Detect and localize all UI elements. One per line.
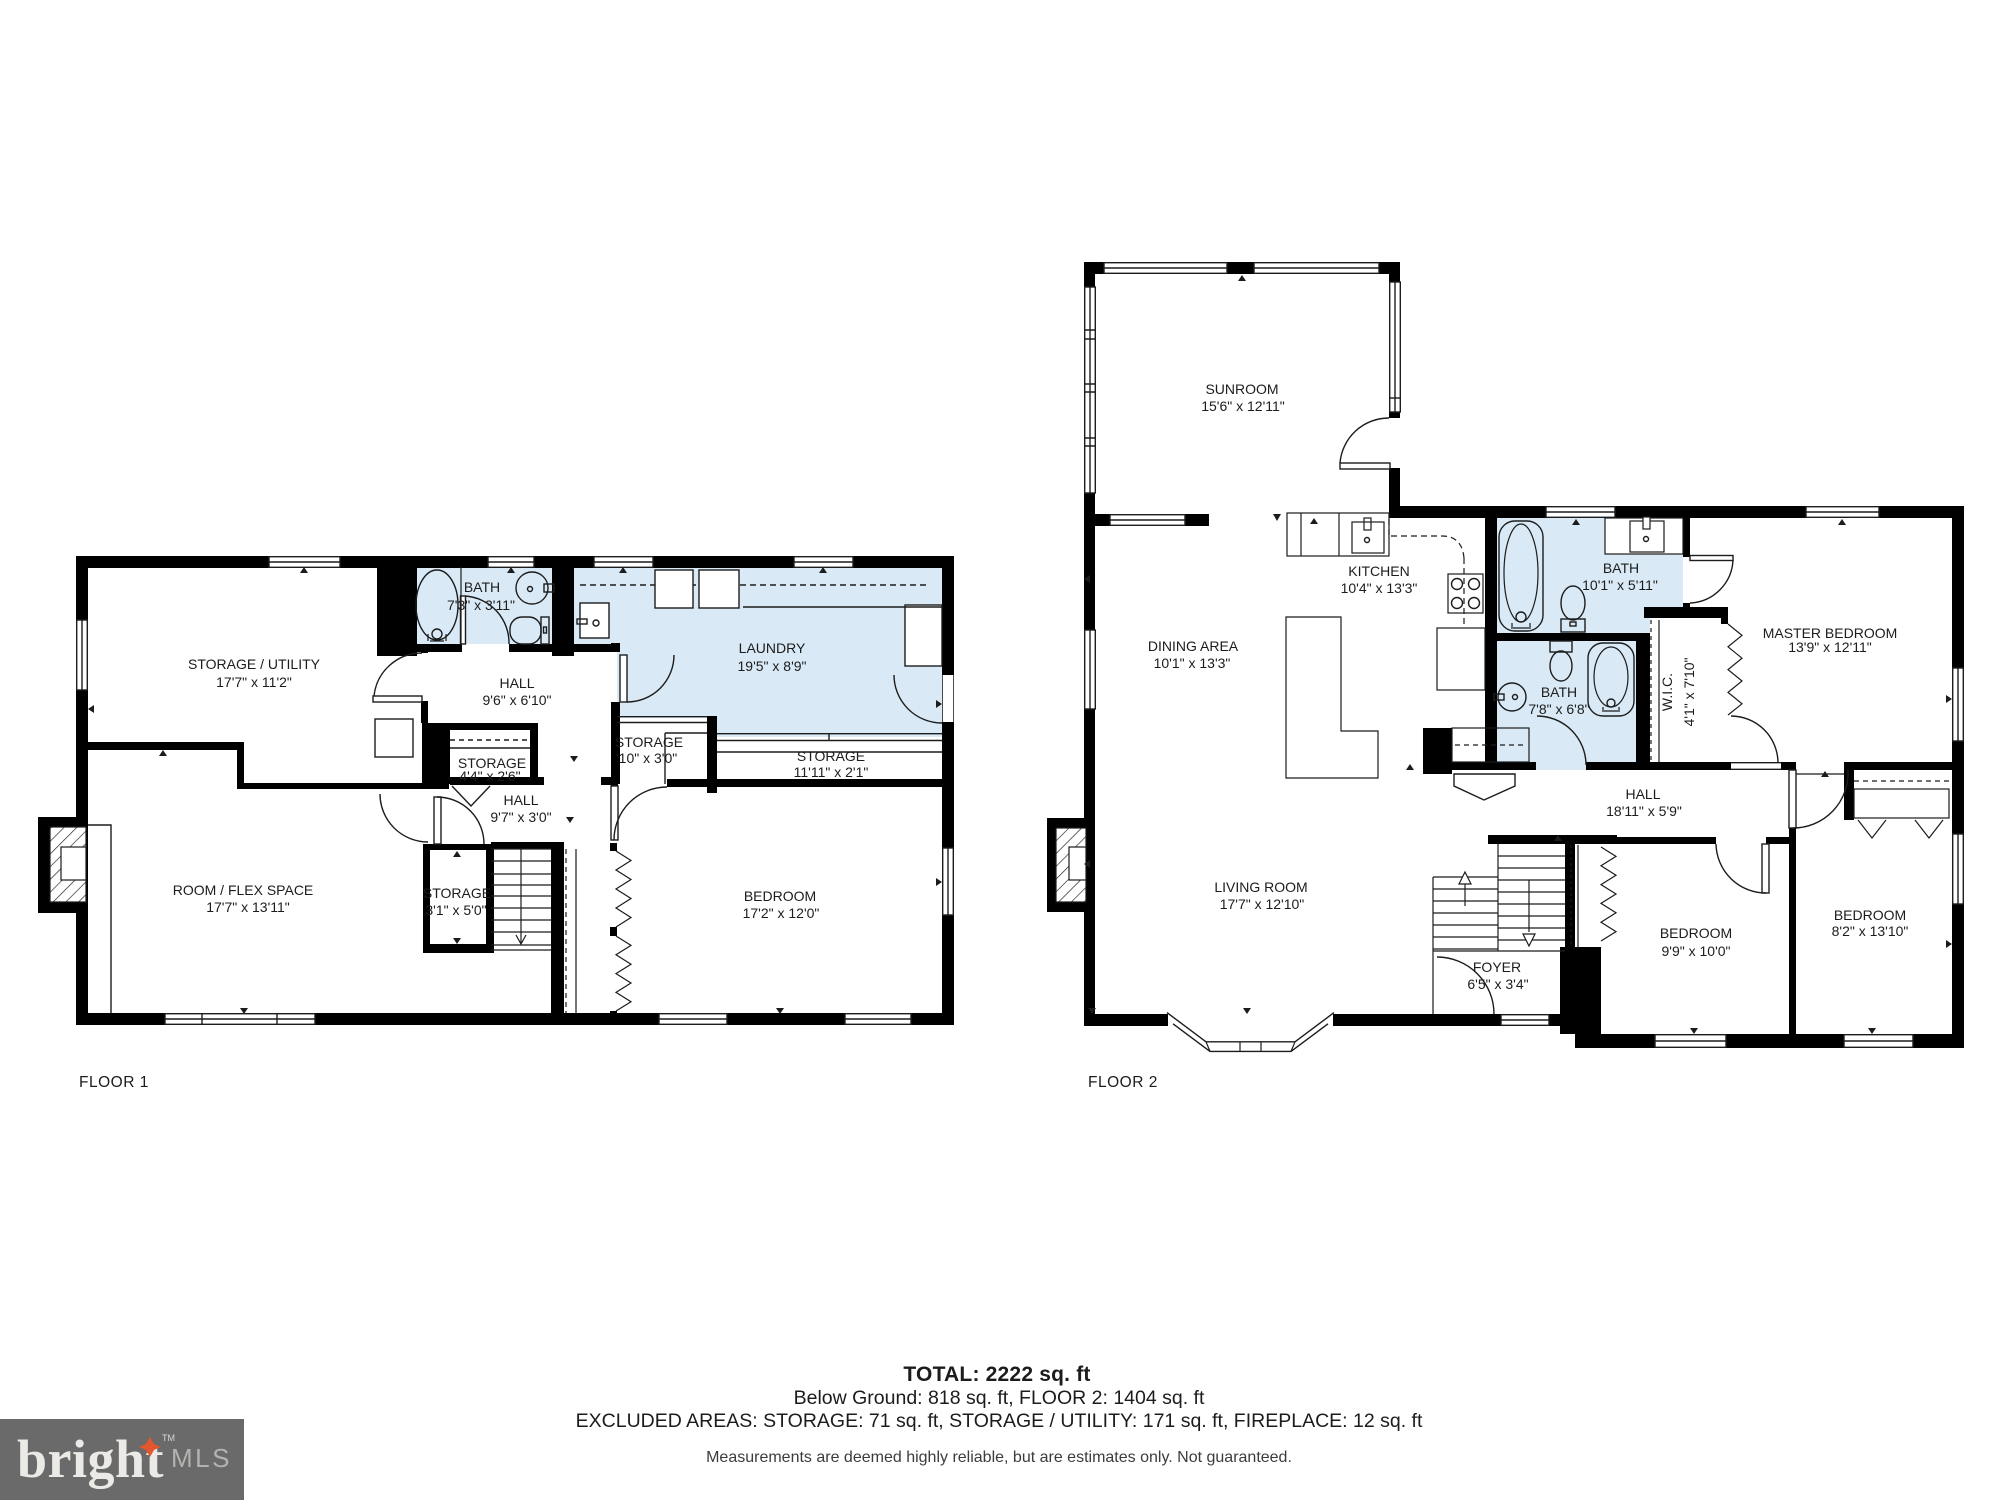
svg-text:18'11" x 5'9": 18'11" x 5'9" — [1606, 803, 1682, 819]
svg-text:bright: bright — [17, 1429, 164, 1489]
svg-text:BEDROOM: BEDROOM — [1660, 925, 1732, 941]
svg-text:17'7" x 12'10": 17'7" x 12'10" — [1220, 896, 1305, 912]
svg-text:FOYER: FOYER — [1473, 959, 1521, 975]
svg-text:BATH: BATH — [464, 579, 500, 595]
svg-text:BEDROOM: BEDROOM — [1834, 907, 1906, 923]
svg-text:EXCLUDED AREAS: STORAGE: 71 sq: EXCLUDED AREAS: STORAGE: 71 sq. ft, STOR… — [576, 1410, 1423, 1432]
svg-text:HALL: HALL — [503, 792, 538, 808]
svg-text:STORAGE: STORAGE — [797, 748, 865, 764]
svg-text:SUNROOM: SUNROOM — [1205, 381, 1278, 397]
svg-text:STORAGE: STORAGE — [423, 885, 491, 901]
svg-text:4'1" x 7'10": 4'1" x 7'10" — [1681, 657, 1697, 726]
svg-text:Below Ground: 818 sq. ft, FLOO: Below Ground: 818 sq. ft, FLOOR 2: 1404 … — [794, 1387, 1205, 1409]
svg-text:6'5" x 3'4": 6'5" x 3'4" — [1467, 976, 1528, 992]
svg-text:BATH: BATH — [1603, 560, 1639, 576]
svg-text:17'2" x 12'0": 17'2" x 12'0" — [743, 905, 820, 921]
svg-text:'10" x 3'0": '10" x 3'0" — [616, 750, 677, 766]
svg-text:Measurements are deemed highly: Measurements are deemed highly reliable,… — [706, 1449, 1292, 1466]
svg-text:DINING AREA: DINING AREA — [1148, 638, 1239, 654]
svg-text:STORAGE / UTILITY: STORAGE / UTILITY — [188, 656, 321, 672]
svg-text:FLOOR 2: FLOOR 2 — [1088, 1074, 1158, 1091]
svg-text:LIVING ROOM: LIVING ROOM — [1214, 879, 1307, 895]
svg-text:17'7" x 11'2": 17'7" x 11'2" — [216, 674, 292, 690]
svg-text:13'9" x 12'11": 13'9" x 12'11" — [1788, 639, 1872, 655]
svg-text:8'2" x 13'10": 8'2" x 13'10" — [1832, 923, 1909, 939]
svg-text:7'3" x 3'11": 7'3" x 3'11" — [447, 597, 515, 613]
svg-text:4'4" x 2'6": 4'4" x 2'6" — [459, 768, 520, 784]
svg-text:10'4" x 13'3": 10'4" x 13'3" — [1341, 580, 1418, 596]
svg-text:7'8" x 6'8": 7'8" x 6'8" — [1528, 701, 1589, 717]
svg-text:10'1" x 5'11": 10'1" x 5'11" — [1582, 577, 1658, 593]
svg-text:9'9" x 10'0": 9'9" x 10'0" — [1662, 943, 1731, 959]
svg-text:HALL: HALL — [499, 675, 534, 691]
svg-text:HALL: HALL — [1625, 786, 1660, 802]
svg-text:FLOOR 1: FLOOR 1 — [79, 1074, 149, 1091]
svg-text:STORAGE: STORAGE — [615, 734, 683, 750]
svg-text:19'5" x 8'9": 19'5" x 8'9" — [738, 658, 807, 674]
svg-text:ROOM / FLEX SPACE: ROOM / FLEX SPACE — [173, 882, 314, 898]
svg-text:LAUNDRY: LAUNDRY — [739, 640, 806, 656]
svg-text:10'1" x 13'3": 10'1" x 13'3" — [1154, 655, 1231, 671]
svg-text:MLS: MLS — [171, 1443, 232, 1473]
svg-text:BEDROOM: BEDROOM — [744, 888, 816, 904]
svg-text:3'1" x 5'0": 3'1" x 5'0" — [425, 902, 486, 918]
svg-text:W.I.C.: W.I.C. — [1659, 673, 1675, 711]
svg-text:TOTAL: 2222 sq. ft: TOTAL: 2222 sq. ft — [903, 1363, 1090, 1386]
svg-text:TM: TM — [162, 1433, 175, 1443]
svg-text:11'11" x 2'1": 11'11" x 2'1" — [794, 764, 869, 780]
svg-text:17'7" x 13'11": 17'7" x 13'11" — [206, 899, 290, 915]
svg-text:KITCHEN: KITCHEN — [1348, 563, 1409, 579]
svg-text:15'6" x 12'11": 15'6" x 12'11" — [1201, 398, 1285, 414]
svg-text:9'6" x 6'10": 9'6" x 6'10" — [483, 692, 552, 708]
svg-text:9'7" x 3'0": 9'7" x 3'0" — [490, 809, 551, 825]
svg-text:BATH: BATH — [1541, 684, 1577, 700]
